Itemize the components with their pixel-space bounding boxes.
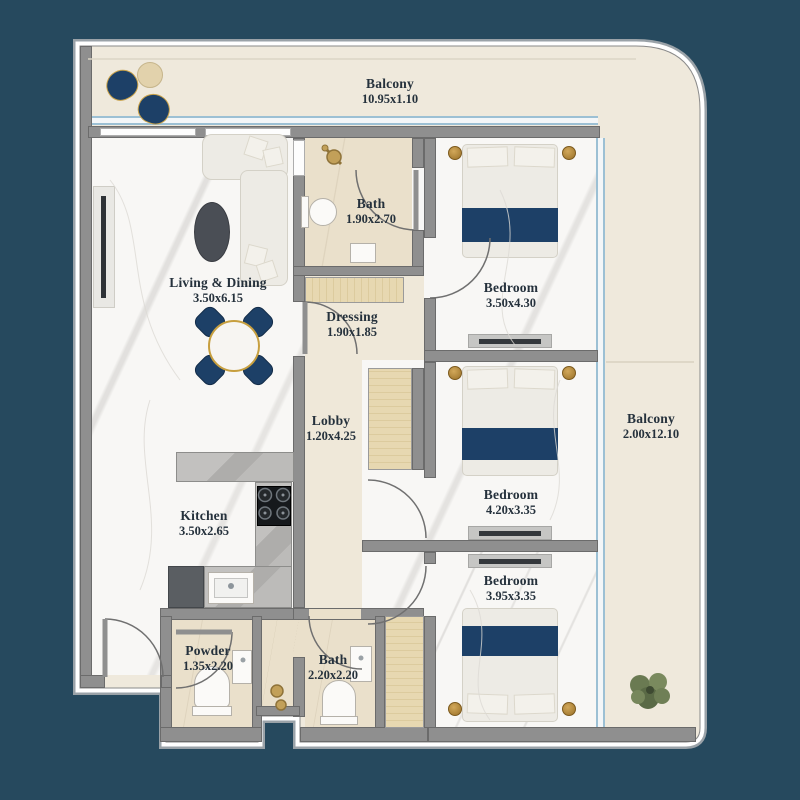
room-label-balcony-right: Balcony 2.00x12.10	[623, 411, 679, 443]
shower-icon	[322, 145, 341, 164]
door-icon	[430, 238, 490, 298]
faucet-icon	[359, 656, 364, 661]
room-label-lobby: Lobby 1.20x4.25	[306, 413, 356, 445]
door-icon	[368, 480, 426, 538]
room-label-bath-bottom: Bath 2.20x2.20	[308, 652, 358, 684]
door-icon	[105, 619, 163, 677]
faucet-icon	[241, 658, 246, 663]
overlay-layer	[0, 0, 800, 800]
room-label-bedroom-2: Bedroom 4.20x3.35	[484, 487, 538, 519]
plant-icon	[630, 673, 670, 709]
room-label-balcony-top: Balcony 10.95x1.10	[362, 76, 418, 108]
door-icon	[368, 566, 426, 624]
floor-plan: Balcony 10.95x1.10 Living & Dining 3.50x…	[0, 0, 800, 800]
room-label-powder: Powder 1.35x2.20	[183, 643, 233, 675]
marble-veins	[110, 180, 560, 720]
room-label-dressing: Dressing 1.90x1.85	[326, 309, 378, 341]
door-arcs	[105, 170, 490, 688]
room-label-bath-top: Bath 1.90x2.70	[346, 196, 396, 228]
shower-icon	[271, 685, 286, 710]
room-label-bedroom-3: Bedroom 3.95x3.35	[484, 573, 538, 605]
room-label-kitchen: Kitchen 3.50x2.65	[179, 508, 229, 540]
room-label-bedroom-1: Bedroom 3.50x4.30	[484, 280, 538, 312]
stove-burners	[259, 489, 290, 520]
faucet-icon	[228, 583, 234, 589]
door-leaves	[105, 170, 416, 677]
room-label-living-dining: Living & Dining 3.50x6.15	[169, 275, 267, 307]
